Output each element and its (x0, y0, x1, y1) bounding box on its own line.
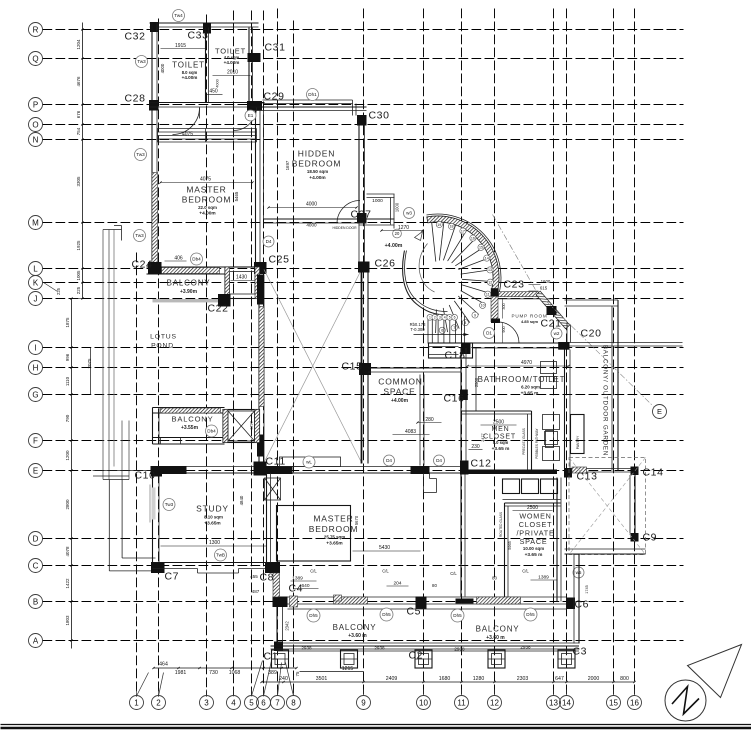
svg-text:1068: 1068 (229, 670, 241, 676)
svg-text:1215: 1215 (342, 666, 354, 672)
svg-text:C8: C8 (260, 572, 275, 584)
svg-text:K: K (33, 278, 39, 287)
svg-text:16: 16 (630, 698, 639, 707)
svg-text:+3.65 m: +3.65 m (492, 446, 510, 452)
svg-text:HIDDEN: HIDDEN (298, 149, 335, 159)
svg-text:7: 7 (453, 326, 455, 330)
svg-text:9: 9 (361, 698, 366, 707)
svg-text:C10: C10 (135, 470, 156, 482)
svg-text:225: 225 (76, 286, 81, 294)
svg-text:5965: 5965 (508, 541, 512, 549)
svg-text:2000: 2000 (588, 676, 600, 682)
svg-text:TwB: TwB (216, 553, 225, 558)
svg-text:B: B (33, 597, 38, 606)
svg-text:464: 464 (159, 662, 168, 668)
svg-text:2342: 2342 (285, 621, 290, 631)
svg-text:2938: 2938 (301, 646, 312, 651)
svg-text:1280: 1280 (473, 676, 485, 682)
svg-text:HIDDEN DOOR: HIDDEN DOOR (332, 226, 357, 230)
svg-text:1875: 1875 (65, 317, 70, 328)
svg-text:C/L: C/L (522, 569, 529, 574)
svg-text:C2: C2 (409, 650, 424, 662)
svg-text:D1: D1 (486, 331, 492, 336)
svg-text:PANTRY: PANTRY (576, 435, 580, 449)
svg-text:1200: 1200 (65, 450, 70, 461)
svg-text:C5: C5 (407, 606, 422, 618)
svg-text:676: 676 (76, 110, 81, 118)
svg-text:2938: 2938 (454, 647, 465, 652)
svg-text:17: 17 (461, 229, 465, 233)
svg-text:+3.65 m: +3.65 m (521, 391, 539, 397)
svg-text:230: 230 (471, 444, 480, 450)
svg-text:5: 5 (449, 316, 451, 320)
svg-text:6.20 sqm: 6.20 sqm (521, 385, 540, 390)
svg-text:730: 730 (209, 670, 218, 676)
svg-text:487: 487 (252, 589, 260, 594)
svg-text:C13: C13 (577, 471, 598, 483)
svg-text:2477: 2477 (481, 433, 485, 441)
svg-text:8: 8 (291, 698, 296, 707)
svg-text:3: 3 (439, 316, 441, 320)
svg-text:wL: wL (306, 460, 312, 465)
svg-text:BEDROOM: BEDROOM (182, 195, 232, 205)
svg-text:Q: Q (32, 54, 38, 63)
svg-text:1270: 1270 (398, 225, 409, 231)
svg-text:Tw3: Tw3 (137, 59, 146, 64)
svg-text:C: C (33, 561, 39, 570)
svg-text:2075: 2075 (87, 358, 92, 369)
svg-text:E: E (657, 407, 662, 416)
svg-text:C16: C16 (444, 393, 465, 405)
svg-text:20: 20 (395, 231, 400, 236)
svg-text:25.75 sqm: 25.75 sqm (324, 535, 345, 540)
svg-text:+3.60 m: +3.60 m (348, 633, 367, 639)
svg-text:18: 18 (450, 225, 454, 229)
svg-text:13: 13 (488, 268, 492, 272)
svg-text:7: 7 (275, 698, 280, 707)
svg-text:1000: 1000 (395, 202, 400, 212)
svg-text:E: E (33, 466, 38, 475)
svg-text:ROUTED GLASS: ROUTED GLASS (499, 512, 503, 537)
svg-text:O: O (32, 120, 38, 129)
svg-text:2500: 2500 (493, 420, 504, 426)
svg-text:406: 406 (174, 256, 183, 262)
svg-text:C22: C22 (208, 303, 229, 315)
svg-text:H: H (33, 363, 39, 372)
svg-text:3501: 3501 (316, 676, 328, 682)
svg-text:1915: 1915 (175, 43, 186, 49)
svg-text:TOILET: TOILET (172, 61, 205, 70)
svg-text:1430: 1430 (236, 275, 247, 281)
svg-text:12: 12 (490, 698, 499, 707)
svg-text:1: 1 (134, 698, 139, 707)
svg-text:5: 5 (249, 698, 254, 707)
svg-text:6: 6 (261, 698, 266, 707)
svg-text:C26: C26 (375, 258, 396, 270)
svg-text:4083: 4083 (405, 429, 416, 435)
svg-text:19: 19 (437, 223, 441, 227)
svg-text:204: 204 (393, 581, 401, 587)
svg-text:C33: C33 (188, 30, 209, 42)
svg-text:2010: 2010 (227, 70, 238, 76)
svg-text:Tw3: Tw3 (165, 502, 174, 507)
svg-text:10: 10 (481, 304, 485, 308)
svg-text:PEBBLES PATHWAY: PEBBLES PATHWAY (535, 427, 539, 458)
svg-text:4000: 4000 (306, 202, 317, 208)
svg-text:1110: 1110 (65, 376, 70, 386)
svg-text:5670: 5670 (354, 515, 359, 525)
svg-text:2303: 2303 (517, 676, 529, 682)
svg-text:13: 13 (549, 698, 558, 707)
svg-text:C25: C25 (269, 254, 290, 266)
svg-text:225: 225 (56, 287, 61, 295)
svg-text:C11: C11 (266, 456, 286, 468)
svg-text:2938: 2938 (374, 646, 385, 651)
svg-text:I: I (34, 343, 36, 352)
svg-text:Db4: Db4 (192, 257, 201, 262)
svg-text:MEN: MEN (492, 426, 510, 433)
svg-text:+3.55m: +3.55m (181, 425, 199, 431)
svg-text:4000: 4000 (306, 223, 317, 228)
svg-text:C4: C4 (289, 583, 304, 595)
svg-text:75: 75 (295, 671, 300, 676)
svg-text:2938: 2938 (520, 645, 531, 650)
svg-text:754: 754 (76, 127, 81, 135)
svg-text:5465: 5465 (234, 191, 239, 201)
svg-text:w2: w2 (554, 331, 560, 336)
svg-text:C32: C32 (125, 31, 146, 43)
svg-text:1389: 1389 (292, 576, 303, 582)
svg-text:Dh5: Dh5 (526, 612, 535, 617)
svg-text:Db4: Db4 (207, 429, 216, 434)
svg-text:80: 80 (492, 576, 497, 581)
svg-text:2: 2 (156, 698, 161, 707)
svg-text:10: 10 (419, 698, 428, 707)
svg-text:C3: C3 (573, 646, 588, 658)
svg-text:C14: C14 (643, 467, 664, 479)
svg-text:BALCONY: BALCONY (333, 623, 377, 632)
svg-text:8.10 sqm: 8.10 sqm (204, 515, 223, 520)
svg-text:C18: C18 (445, 350, 466, 362)
svg-text:4: 4 (444, 316, 446, 320)
svg-text:BALCONY: BALCONY (172, 415, 214, 424)
svg-text:E1: E1 (248, 113, 254, 118)
svg-text:C30: C30 (369, 110, 390, 122)
svg-text:+3.65m: +3.65m (204, 521, 220, 527)
svg-text:BEDROOM: BEDROOM (292, 159, 342, 169)
svg-text:A: A (33, 636, 39, 645)
svg-text:+4.00m: +4.00m (309, 175, 325, 181)
svg-text:BALCONY: BALCONY (167, 279, 211, 288)
svg-text:2800: 2800 (65, 499, 70, 510)
svg-text:Tw3: Tw3 (135, 233, 144, 238)
svg-text:1005: 1005 (76, 270, 81, 281)
svg-text:80: 80 (432, 583, 437, 588)
svg-text:Tw4: Tw4 (174, 13, 183, 18)
svg-text:4: 4 (231, 698, 236, 707)
svg-text:+3.60 m: +3.60 m (486, 635, 505, 641)
svg-text:2500: 2500 (527, 505, 538, 511)
svg-text:9: 9 (474, 313, 476, 317)
svg-text:15: 15 (479, 246, 483, 250)
svg-text:790: 790 (65, 414, 70, 422)
svg-text:C/L: C/L (382, 569, 389, 574)
svg-text:1803: 1803 (65, 615, 70, 626)
svg-text:MASTER: MASTER (313, 514, 353, 524)
svg-text:14: 14 (562, 698, 571, 707)
svg-text:1293: 1293 (250, 421, 254, 429)
svg-text:4000: 4000 (216, 79, 220, 87)
svg-text:Dh1: Dh1 (308, 92, 317, 97)
svg-text:D4: D4 (266, 239, 272, 244)
svg-text:F: F (33, 436, 38, 445)
svg-text:G: G (32, 390, 38, 399)
svg-text:LOTUS: LOTUS (150, 334, 177, 341)
svg-text:T-0.300: T-0.300 (410, 327, 425, 332)
svg-text:COMMON: COMMON (378, 377, 422, 387)
svg-text:5430: 5430 (379, 545, 390, 551)
svg-text:3: 3 (204, 698, 209, 707)
svg-text:BALCONY: BALCONY (476, 625, 520, 634)
svg-text:C23: C23 (504, 279, 525, 291)
svg-text:C12: C12 (471, 458, 492, 470)
svg-text:MASTER: MASTER (186, 185, 226, 195)
svg-text:C29: C29 (264, 91, 285, 103)
svg-text:4075: 4075 (182, 132, 193, 138)
svg-text:C24: C24 (132, 259, 153, 271)
svg-text:6: 6 (454, 316, 456, 320)
svg-text:D4: D4 (386, 458, 392, 463)
svg-text:1: 1 (429, 316, 431, 320)
svg-text:4840: 4840 (239, 495, 244, 505)
svg-text:1680: 1680 (439, 676, 451, 682)
svg-text:+4.00m: +4.00m (391, 398, 409, 404)
svg-text:996: 996 (65, 353, 70, 361)
svg-text:C9: C9 (643, 532, 658, 544)
svg-text:1389: 1389 (538, 575, 549, 581)
svg-text:1697: 1697 (285, 160, 290, 170)
svg-text:w3: w3 (406, 211, 412, 216)
svg-text:L: L (33, 264, 38, 273)
svg-text:4676: 4676 (76, 76, 81, 87)
svg-text:1204: 1204 (76, 39, 81, 50)
svg-text:M: M (32, 218, 39, 227)
svg-text:PRECAST GLASS: PRECAST GLASS (522, 428, 526, 455)
svg-text:C/L: C/L (310, 569, 317, 574)
svg-text:Tw3: Tw3 (136, 152, 145, 157)
svg-text:2500: 2500 (474, 377, 479, 387)
svg-text:15: 15 (609, 698, 618, 707)
svg-text:C7: C7 (165, 571, 180, 583)
svg-text:+4.00m: +4.00m (182, 75, 198, 80)
svg-text:STUDY: STUDY (196, 504, 229, 514)
svg-text:C20: C20 (581, 328, 602, 340)
svg-text:12: 12 (488, 281, 492, 285)
svg-text:C15: C15 (342, 361, 363, 373)
svg-text:C21: C21 (541, 318, 562, 330)
svg-text:C31: C31 (265, 42, 286, 54)
svg-text:11: 11 (486, 293, 490, 297)
svg-text:2: 2 (434, 316, 436, 320)
svg-text:4000: 4000 (160, 63, 165, 73)
svg-text:3305: 3305 (76, 176, 81, 187)
svg-text:+4.00m: +4.00m (224, 60, 240, 65)
svg-text:1745: 1745 (585, 585, 589, 593)
svg-text:SPACE: SPACE (383, 387, 415, 397)
svg-text:C/L: C/L (450, 571, 457, 576)
svg-text:450: 450 (209, 89, 218, 95)
svg-text:4075: 4075 (200, 177, 211, 183)
svg-text:Dh5: Dh5 (382, 612, 391, 617)
svg-text:1422: 1422 (65, 578, 70, 589)
svg-text:D: D (33, 534, 39, 543)
svg-text:+3.65m: +3.65m (326, 541, 342, 547)
svg-text:10.00 sqm: 10.00 sqm (523, 546, 544, 551)
svg-text:2409: 2409 (386, 676, 398, 682)
svg-text:800: 800 (620, 676, 629, 682)
svg-text:SPACE: SPACE (520, 537, 548, 546)
svg-text:14: 14 (485, 256, 489, 260)
svg-text:1300: 1300 (209, 540, 220, 546)
svg-text:C1: C1 (264, 651, 279, 663)
svg-text:22.0 sqm: 22.0 sqm (198, 205, 217, 210)
svg-text:D4: D4 (436, 458, 442, 463)
svg-text:1981: 1981 (175, 670, 187, 676)
svg-text:389: 389 (268, 670, 277, 676)
svg-text:455: 455 (250, 574, 258, 579)
svg-text:4970: 4970 (521, 360, 532, 366)
svg-text:R: R (33, 25, 39, 34)
svg-text:647: 647 (555, 676, 564, 682)
svg-text:C28: C28 (125, 93, 146, 105)
svg-text:11: 11 (457, 698, 466, 707)
svg-text:Dh5: Dh5 (453, 613, 462, 618)
svg-text:+3.65 m: +3.65 m (525, 552, 543, 558)
svg-text:4.85 sqm: 4.85 sqm (521, 319, 539, 324)
svg-text:Dh5: Dh5 (309, 613, 318, 618)
svg-text:615: 615 (540, 286, 548, 291)
svg-text:1925: 1925 (76, 240, 81, 251)
svg-text:+4.00m: +4.00m (385, 243, 403, 249)
svg-text:240: 240 (279, 676, 288, 682)
svg-text:BALCONY/ OUTDOOR GARDEN: BALCONY/ OUTDOOR GARDEN (602, 345, 609, 456)
svg-text:5.0 sqm: 5.0 sqm (493, 440, 509, 445)
svg-text:6: 6 (441, 329, 443, 333)
svg-text:4078: 4078 (65, 546, 70, 557)
svg-text:POND: POND (151, 343, 174, 350)
svg-text:+3.90m: +3.90m (180, 289, 198, 295)
svg-text:18.50 sqm: 18.50 sqm (307, 169, 328, 174)
svg-text:J: J (34, 294, 38, 303)
svg-text:16: 16 (471, 236, 475, 240)
svg-text:N: N (33, 135, 39, 144)
svg-text:1000: 1000 (372, 198, 383, 204)
svg-text:C6: C6 (575, 599, 590, 611)
svg-text:C27: C27 (351, 209, 372, 221)
svg-text:+4.00m: +4.00m (199, 211, 215, 217)
svg-text:1600: 1600 (541, 279, 551, 284)
svg-text:280: 280 (425, 417, 434, 423)
svg-text:P: P (33, 100, 38, 109)
